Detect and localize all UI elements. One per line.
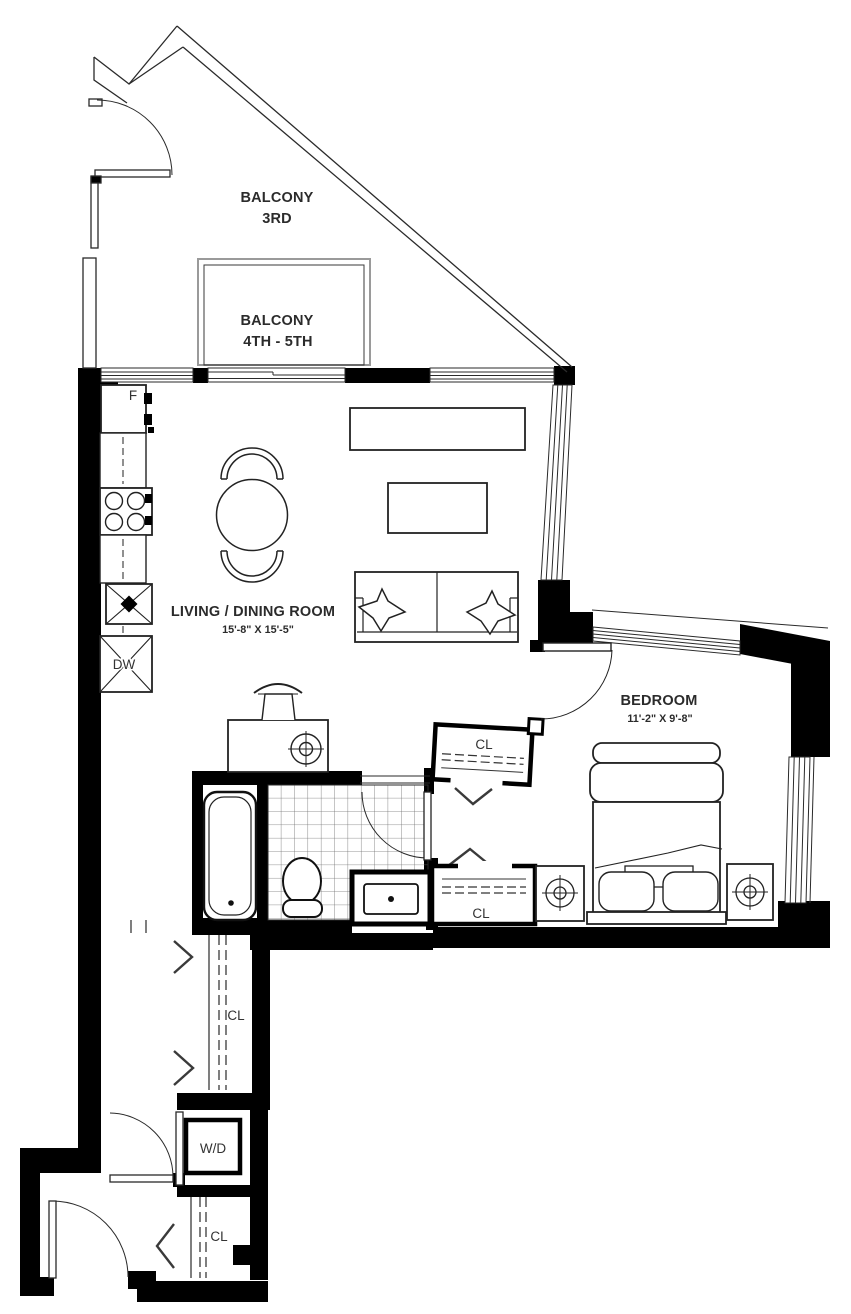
wall-tub-east <box>257 785 268 925</box>
coffee-table <box>388 483 487 533</box>
closet-upper-post <box>528 719 543 735</box>
stove-tab-2 <box>145 516 152 525</box>
desk-chair-seat <box>262 694 295 720</box>
hall-door-leaf <box>110 1175 173 1182</box>
label-closet-entry: CL <box>210 1229 228 1244</box>
balcony-door-hinge <box>91 176 101 183</box>
label-closet-lower: CL <box>472 906 490 921</box>
label-balcony-45: BALCONY <box>240 313 313 329</box>
window-bedroom-east-outer-line <box>810 757 814 903</box>
bed-pillow-right <box>663 872 718 911</box>
label-balcony-3rd: BALCONY <box>240 190 313 206</box>
bed-pillow-left <box>599 872 654 911</box>
entry-door-swing-arc <box>52 1201 128 1277</box>
wall-entry-west <box>20 1148 40 1296</box>
burner-3 <box>106 514 123 531</box>
wall-west <box>78 368 101 1173</box>
closet-upper-door-chevron <box>455 788 492 804</box>
dining-chair-bottom <box>221 551 283 582</box>
wall-mullion-block <box>193 368 208 383</box>
wall-hall-wd-divider <box>177 1093 252 1110</box>
label-living-dining-dim: 15'-8" X 15'-5" <box>222 624 294 636</box>
bedroom-door-swing-arc <box>541 650 612 719</box>
living-furniture <box>217 408 526 772</box>
bathroom <box>131 776 431 933</box>
balcony-door-swing-arc <box>97 100 172 175</box>
fridge-hinge-2 <box>144 414 152 425</box>
bed-duvet-band <box>590 763 723 802</box>
burner-1 <box>106 493 123 510</box>
fridge <box>101 385 146 433</box>
desk-chair-back <box>254 684 302 693</box>
bed-duvet-fold <box>593 743 720 763</box>
hall-opening-ticks <box>131 920 146 933</box>
bathdoor-leaf <box>424 792 431 860</box>
closet-entry-chevron <box>157 1224 174 1268</box>
label-living-dining: LIVING / DINING ROOM <box>171 604 335 620</box>
burner-4 <box>128 514 145 531</box>
closet-lower-opening <box>458 861 512 871</box>
closet-hall-rod <box>219 935 226 1090</box>
closet-hall-chevron-top <box>174 941 192 973</box>
hall-door-swing-arc <box>110 1113 173 1177</box>
vanity-drain <box>388 896 394 902</box>
label-closet-upper: CL <box>475 737 493 752</box>
closet-entry-rod <box>200 1197 206 1278</box>
stove-tab-1 <box>145 494 152 503</box>
label-washer-dryer: W/D <box>200 1141 226 1156</box>
kitchen <box>100 385 154 692</box>
wall-hallcloset-east <box>252 933 270 1110</box>
media-console <box>350 408 525 450</box>
bedroom <box>536 643 773 924</box>
wall-bath-south-c <box>250 933 433 950</box>
label-bedroom-dim: 11'-2" X 9'-8" <box>627 713 692 725</box>
floorplan-page: BALCONY 3RD BALCONY 4TH - 5TH LIVING / D… <box>0 0 851 1314</box>
balcony-parapet-inner-seg <box>129 47 183 84</box>
bed-headboard <box>587 912 726 924</box>
wall-bedroom-south <box>433 927 778 948</box>
wd-partition-wall <box>176 1112 183 1185</box>
fridge-hinge-1 <box>144 393 152 404</box>
entry-door-leaf <box>49 1201 56 1278</box>
wall-north-mid <box>345 368 430 383</box>
label-fridge: F <box>129 388 137 403</box>
bathdoor-header-lines <box>360 776 430 783</box>
wall-ne-living-corner <box>554 366 575 385</box>
balcony-parapet-wing <box>94 57 127 103</box>
window-bedroom-north-outer-line <box>592 610 828 628</box>
balcony-rail-segment-1 <box>91 177 98 248</box>
labels: BALCONY 3RD BALCONY 4TH - 5TH LIVING / D… <box>113 190 698 1244</box>
label-balcony-3rd-sub: 3RD <box>262 211 292 227</box>
wall-entry-south-a <box>20 1277 54 1296</box>
label-dishwasher: DW <box>113 657 136 672</box>
bathtub-inner <box>209 797 251 915</box>
balcony-diagonal-outer <box>177 26 572 367</box>
toilet-bowl <box>283 858 321 904</box>
balcony-rail-segment-2 <box>83 258 96 368</box>
wall-bedroom-east <box>791 658 830 757</box>
wall-wd-cl-divider <box>177 1185 252 1197</box>
label-balcony-45-sub: 4TH - 5TH <box>243 334 312 350</box>
burner-2 <box>128 493 145 510</box>
balcony-structure <box>83 26 572 372</box>
wall-bath-south-b <box>192 920 352 935</box>
bedroom-door-leaf <box>543 643 611 651</box>
wall-bedroom-se-corner <box>778 901 830 948</box>
wall-bath-north <box>192 771 362 785</box>
dining-chair-top <box>221 448 283 479</box>
balcony-door-leaf <box>95 170 170 177</box>
fridge-hinge-dot <box>148 427 154 433</box>
wall-entrycl-south <box>137 1281 268 1302</box>
label-bedroom: BEDROOM <box>620 693 697 709</box>
wall-tub-west <box>192 785 203 925</box>
toilet-base <box>283 900 322 917</box>
dining-table <box>217 480 288 551</box>
label-closet-hall: CL <box>227 1008 245 1023</box>
closet-hall-chevron-bottom <box>174 1051 193 1085</box>
floorplan-drawing: BALCONY 3RD BALCONY 4TH - 5TH LIVING / D… <box>0 0 851 1314</box>
balcony-parapet-outer-zigzag <box>94 26 177 84</box>
bathtub-drain <box>228 900 234 906</box>
wall-entry-step <box>233 1245 268 1265</box>
wall-east-L-corner <box>538 580 593 651</box>
